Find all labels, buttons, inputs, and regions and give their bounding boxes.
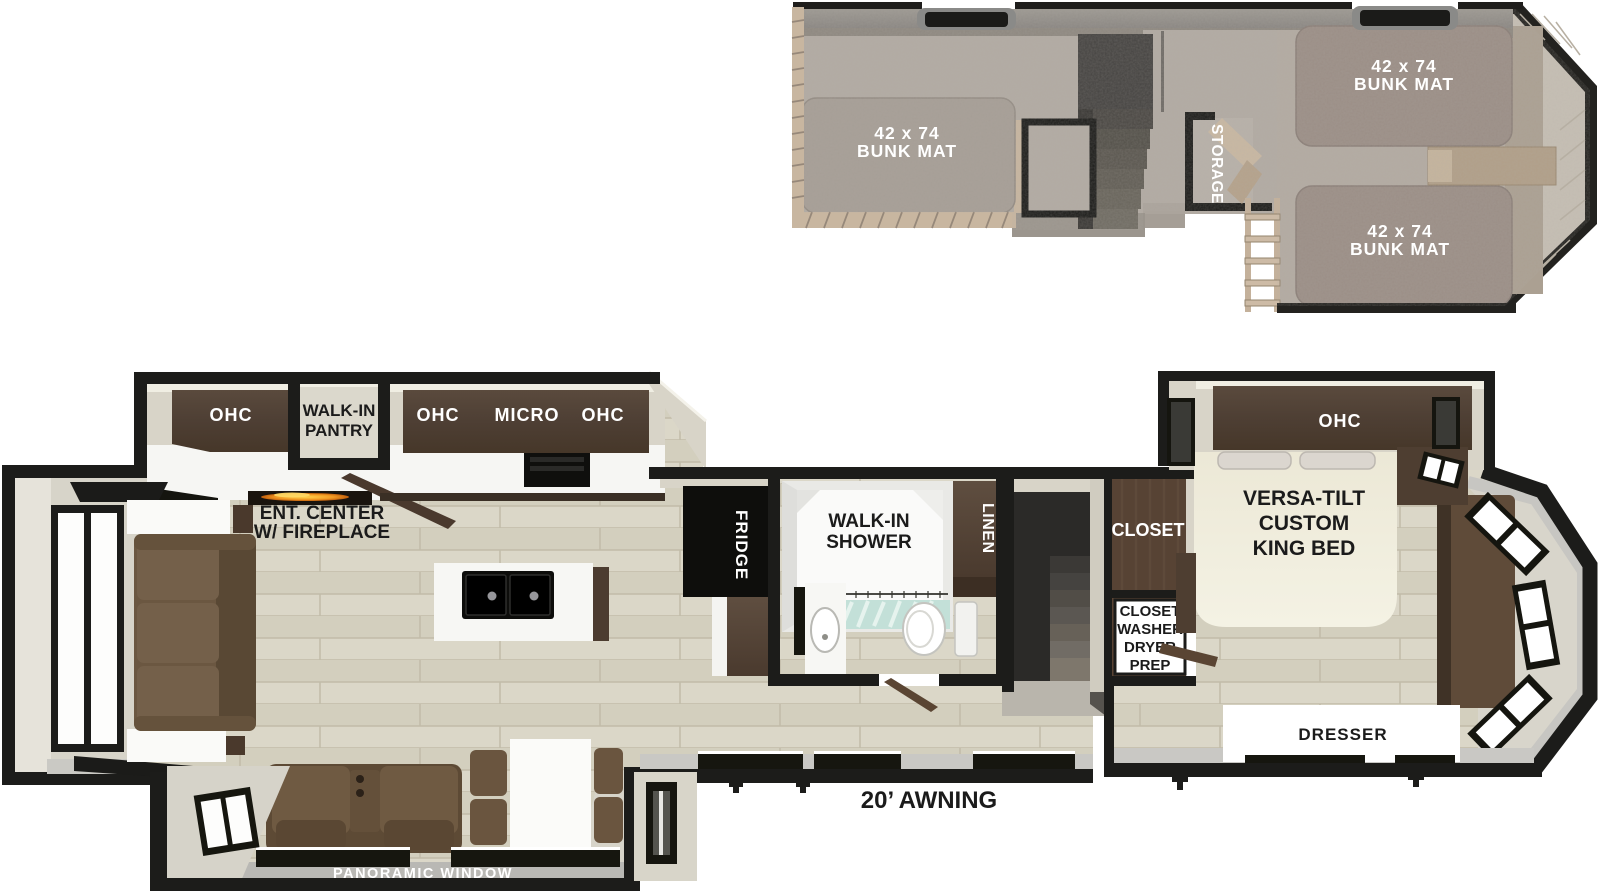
svg-text:BUNK MAT: BUNK MAT (1350, 239, 1450, 259)
svg-text:OHC: OHC (582, 405, 625, 425)
svg-text:CLOSET: CLOSET (1120, 603, 1181, 620)
svg-text:KING BED: KING BED (1253, 537, 1356, 560)
svg-text:SHOWER: SHOWER (826, 532, 912, 553)
svg-text:BUNK MAT: BUNK MAT (1354, 74, 1454, 94)
svg-text:PREP: PREP (1130, 657, 1171, 674)
svg-text:VERSA-TILT: VERSA-TILT (1243, 487, 1365, 510)
svg-text:42 x 74: 42 x 74 (1371, 56, 1436, 76)
svg-text:MICRO: MICRO (495, 405, 560, 425)
svg-text:20’ AWNING: 20’ AWNING (861, 787, 997, 814)
svg-text:LINEN: LINEN (979, 503, 996, 554)
svg-text:WASHER: WASHER (1117, 621, 1183, 638)
svg-text:WALK-IN: WALK-IN (828, 511, 909, 532)
svg-text:FRIDGE: FRIDGE (732, 510, 751, 580)
svg-text:OHC: OHC (1319, 411, 1362, 431)
svg-text:42 x 74: 42 x 74 (1367, 221, 1432, 241)
svg-text:PANTRY: PANTRY (305, 421, 374, 440)
svg-text:CLOSET: CLOSET (1111, 520, 1184, 540)
svg-text:DRESSER: DRESSER (1298, 725, 1387, 744)
svg-text:STORAGE: STORAGE (1208, 124, 1225, 204)
svg-text:WALK-IN: WALK-IN (303, 401, 376, 420)
svg-text:W/ FIREPLACE: W/ FIREPLACE (254, 522, 390, 543)
svg-text:BUNK MAT: BUNK MAT (857, 141, 957, 161)
svg-text:OHC: OHC (417, 405, 460, 425)
svg-text:OHC: OHC (210, 405, 253, 425)
svg-text:42 x 74: 42 x 74 (874, 123, 939, 143)
svg-text:CUSTOM: CUSTOM (1259, 512, 1350, 535)
svg-text:ENT. CENTER: ENT. CENTER (260, 503, 385, 524)
